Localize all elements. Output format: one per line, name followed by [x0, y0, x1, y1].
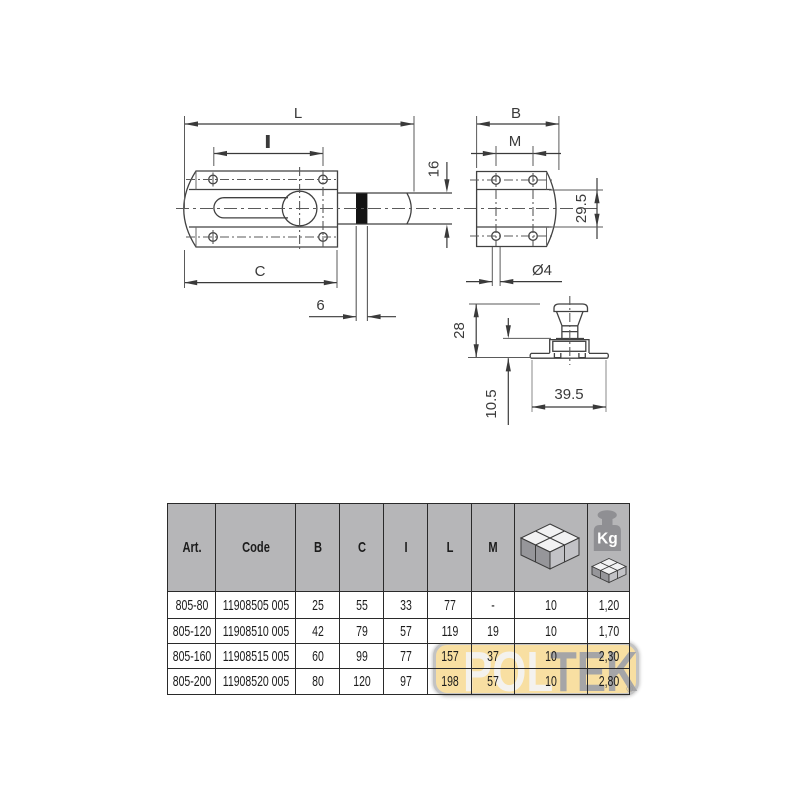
svg-text:B: B [511, 105, 521, 122]
svg-text:L: L [294, 105, 302, 122]
svg-text:10.5: 10.5 [483, 389, 500, 418]
svg-text:16: 16 [426, 161, 443, 178]
svg-text:6: 6 [316, 297, 324, 314]
svg-text:M: M [509, 133, 522, 150]
svg-text:C: C [255, 263, 266, 280]
svg-text:29.5: 29.5 [573, 194, 590, 223]
svg-text:28: 28 [451, 322, 468, 339]
svg-text:Ø4: Ø4 [532, 262, 552, 279]
svg-text:Kg: Kg [597, 531, 618, 548]
svg-text:39.5: 39.5 [554, 386, 583, 403]
